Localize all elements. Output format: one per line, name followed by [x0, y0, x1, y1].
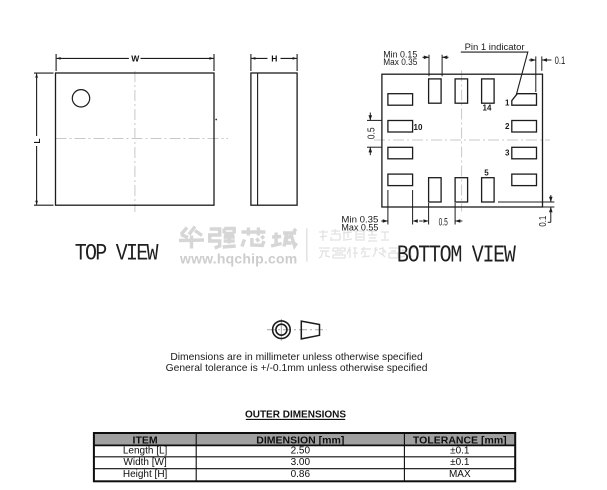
svg-text:14: 14: [483, 103, 492, 112]
svg-text:OUTER DIMENSIONS: OUTER DIMENSIONS: [245, 409, 346, 420]
svg-text:0.86: 0.86: [291, 469, 311, 480]
svg-text:10: 10: [414, 123, 423, 132]
svg-text:Max 0.35: Max 0.35: [383, 57, 417, 67]
svg-text:W: W: [131, 53, 140, 63]
svg-text:Pin 1 indicator: Pin 1 indicator: [465, 42, 525, 52]
svg-text:2.50: 2.50: [291, 446, 311, 457]
svg-text:1: 1: [505, 99, 510, 108]
svg-text:0.5: 0.5: [365, 127, 377, 139]
svg-text:MAX: MAX: [449, 469, 471, 480]
svg-text:Height [H]: Height [H]: [123, 469, 168, 480]
svg-text:L: L: [32, 138, 42, 143]
svg-text:0.5: 0.5: [439, 217, 448, 229]
svg-text:5: 5: [484, 168, 489, 177]
svg-text:Dimensions are in millimeter u: Dimensions are in millimeter unless othe…: [170, 352, 423, 363]
svg-text:Width [W]: Width [W]: [123, 457, 167, 468]
svg-text:Length [L]: Length [L]: [123, 446, 168, 457]
svg-text:2: 2: [505, 122, 510, 131]
svg-text:www.hqchip.com: www.hqchip.com: [179, 250, 297, 266]
svg-text:±0.1: ±0.1: [450, 446, 470, 457]
svg-text:0.1: 0.1: [555, 55, 566, 67]
svg-text:TOP VIEW: TOP VIEW: [75, 240, 159, 267]
svg-text:H: H: [271, 53, 277, 63]
svg-text:Max 0.55: Max 0.55: [341, 223, 378, 233]
svg-text:0.1: 0.1: [538, 215, 549, 226]
svg-text:BOTTOM VIEW: BOTTOM VIEW: [397, 242, 517, 269]
svg-text:3: 3: [505, 148, 510, 157]
svg-text:3.00: 3.00: [291, 457, 311, 468]
svg-text:General tolerance is +/-0.1mm: General tolerance is +/-0.1mm unless oth…: [166, 363, 428, 374]
svg-text:±0.1: ±0.1: [450, 457, 470, 468]
